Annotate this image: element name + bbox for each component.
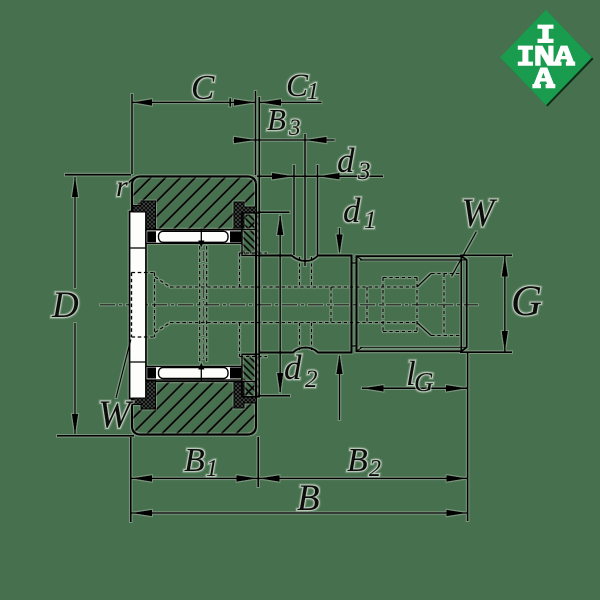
svg-text:3: 3 (288, 115, 301, 140)
svg-text:3: 3 (357, 158, 371, 185)
svg-text:r: r (116, 170, 128, 203)
svg-text:B: B (184, 442, 205, 479)
svg-text:G: G (511, 278, 542, 325)
svg-text:d: d (343, 191, 361, 230)
svg-text:C: C (191, 68, 215, 107)
svg-text:1: 1 (364, 207, 377, 234)
svg-text:C: C (286, 68, 309, 104)
svg-text:d: d (337, 141, 355, 180)
svg-text:1: 1 (307, 79, 319, 105)
svg-text:1: 1 (206, 456, 218, 482)
svg-text:d: d (284, 348, 302, 387)
svg-text:G: G (414, 367, 434, 397)
svg-text:2: 2 (369, 456, 381, 482)
svg-text:2: 2 (305, 366, 318, 393)
svg-text:W: W (461, 190, 498, 235)
svg-text:W: W (98, 393, 134, 436)
svg-text:B: B (267, 102, 286, 137)
svg-text:B: B (347, 442, 368, 479)
svg-text:B: B (297, 478, 320, 519)
svg-text:D: D (51, 285, 79, 326)
